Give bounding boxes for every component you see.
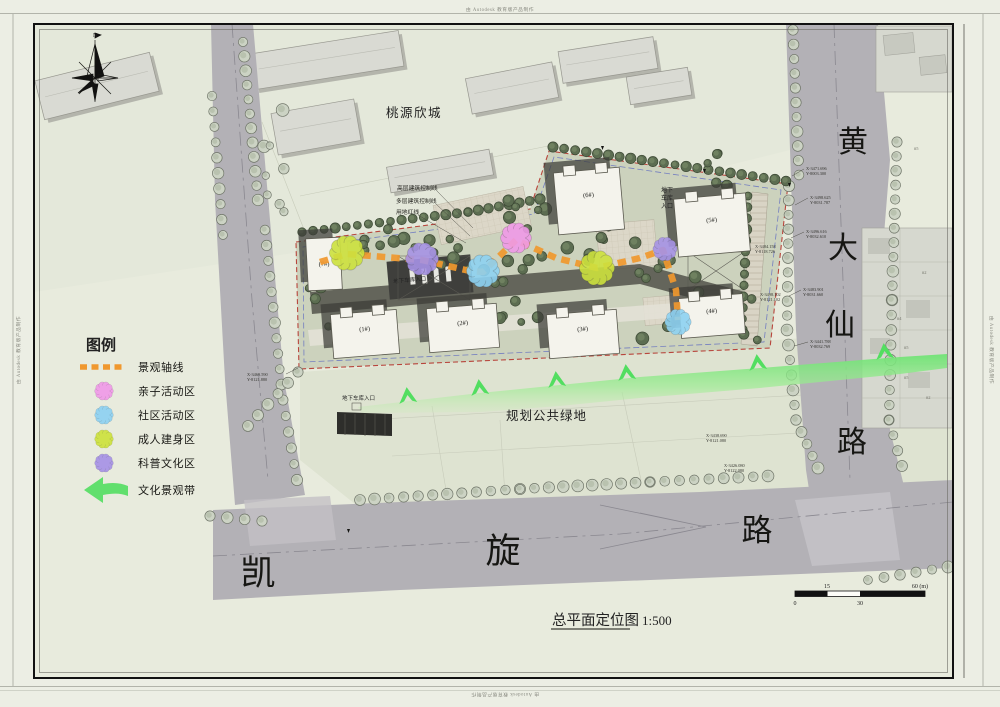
coordinate-label: X-3438.690Y-8121.080 — [706, 433, 727, 443]
legend-flower-icon — [95, 382, 114, 400]
tree-canopy — [376, 219, 381, 224]
legend-flower-icon — [95, 406, 114, 424]
legend-item-label: 景观轴线 — [138, 360, 184, 374]
tree-canopy — [785, 225, 791, 231]
tree-canopy — [385, 494, 390, 499]
tree-canopy — [263, 173, 267, 177]
tree-canopy — [890, 432, 895, 437]
tree-canopy — [474, 206, 480, 212]
parent-child-zone-flower — [501, 223, 532, 253]
tree-canopy — [760, 174, 765, 179]
coordinate-label: X-3498.625Y-8031.787 — [810, 195, 831, 205]
intersection-patch-east — [795, 492, 900, 566]
coordinate-label: X-3471.696Y-8003.300 — [806, 166, 827, 176]
legend-flower-icon — [95, 454, 114, 472]
tree-canopy — [504, 196, 510, 202]
tree-canopy — [343, 224, 347, 228]
building-6: (6#) — [543, 156, 624, 235]
tree-canopy — [243, 81, 248, 86]
tree-canopy — [784, 341, 791, 348]
tree-canopy — [594, 150, 599, 155]
tree-canopy — [637, 334, 644, 341]
tree-canopy — [220, 232, 225, 237]
tree-canopy — [754, 337, 758, 341]
tree-canopy — [247, 124, 253, 130]
tree-canopy — [274, 390, 279, 395]
drawing-sheet: 由 Autodesk 教育版产品制作 由 Autodesk 教育版产品制作 由 … — [0, 0, 1000, 707]
tree-canopy — [789, 386, 796, 393]
tree-canopy — [573, 481, 580, 488]
svg-text:旋: 旋 — [485, 532, 520, 571]
tree-canopy — [784, 312, 789, 317]
tree-canopy — [886, 401, 891, 406]
tree-canopy — [887, 326, 893, 332]
tree-canopy — [398, 216, 403, 221]
tree-canopy — [749, 173, 754, 178]
tree-canopy — [536, 195, 542, 201]
tree-canopy — [893, 153, 898, 158]
tree-canopy — [505, 213, 512, 220]
tree-canopy — [458, 489, 464, 495]
tree-canopy — [789, 26, 795, 32]
tree-canopy — [886, 387, 891, 392]
tree-canopy — [748, 296, 753, 301]
coordinate-label: X-3469.590Y-8121.880 — [247, 372, 268, 382]
tree-canopy — [524, 256, 530, 262]
tree-canopy — [223, 513, 229, 519]
tree-canopy — [276, 366, 281, 371]
tree-canopy — [791, 56, 796, 61]
tree-canopy — [254, 411, 260, 417]
tree-canopy — [211, 123, 216, 128]
green-space-label: 规划公共绿地 — [506, 408, 587, 423]
tree-canopy — [517, 486, 522, 491]
tree-canopy — [270, 304, 275, 309]
tree-canopy — [213, 154, 219, 160]
tree-canopy — [797, 428, 803, 434]
tree-canopy — [764, 472, 771, 479]
tree-canopy — [893, 138, 899, 144]
tree-canopy — [370, 495, 377, 502]
tree-canopy — [886, 417, 891, 422]
tree-canopy — [264, 192, 268, 196]
tree-canopy — [487, 487, 492, 492]
tree-canopy — [790, 41, 796, 47]
tree-canopy — [912, 568, 918, 574]
tree-canopy — [627, 154, 633, 160]
tree-canopy — [783, 326, 789, 332]
tree-canopy — [676, 477, 681, 482]
tree-canopy — [294, 368, 300, 374]
tree-canopy — [795, 157, 801, 163]
svg-text:路: 路 — [742, 513, 773, 548]
parcel-label: #5 — [904, 345, 909, 350]
tree-canopy — [889, 282, 894, 287]
tree-canopy — [643, 275, 648, 280]
legend-item-label: 科普文化区 — [138, 456, 196, 470]
tree-canopy — [705, 475, 711, 481]
tree-canopy — [312, 295, 318, 301]
tree-canopy — [793, 127, 799, 133]
tree-canopy — [512, 297, 517, 302]
tree-canopy — [661, 478, 666, 483]
tree-canopy — [791, 401, 796, 406]
svg-text:凯: 凯 — [240, 554, 275, 593]
tree-canopy — [720, 474, 726, 480]
tree-canopy — [794, 142, 800, 148]
autodesk-watermark-right: 由 Autodesk 教育版产品制作 — [988, 316, 995, 384]
tree-canopy — [244, 422, 250, 428]
tree-canopy — [409, 215, 414, 220]
tree-canopy — [944, 563, 951, 570]
tree-canopy — [278, 105, 285, 112]
tree-canopy — [785, 211, 790, 216]
tree-canopy — [276, 201, 281, 206]
north-label: N — [93, 33, 98, 39]
tree-canopy — [212, 139, 217, 144]
neighborhood-label: 桃源欣城 — [386, 105, 442, 120]
tree-canopy — [215, 184, 221, 190]
building-label: (2#) — [457, 320, 468, 328]
tree-canopy — [705, 160, 709, 164]
parcel-label: #5 — [914, 146, 919, 151]
building-label: (4#) — [706, 308, 717, 316]
legend-item-label: 文化景观带 — [138, 483, 196, 497]
siteplan-canvas: 由 Autodesk 教育版产品制作 由 Autodesk 教育版产品制作 由 … — [0, 0, 1000, 707]
tree-canopy — [741, 259, 746, 264]
adult-fitness-zone-flower — [579, 251, 614, 285]
legend-item-label: 亲子活动区 — [138, 384, 196, 398]
tree-canopy — [241, 66, 247, 72]
tree-canopy — [814, 464, 821, 471]
svg-text:黄: 黄 — [838, 126, 868, 159]
tree-canopy — [388, 218, 392, 222]
tree-canopy — [285, 428, 291, 434]
tree-canopy — [377, 242, 382, 247]
tree-canopy — [602, 480, 608, 486]
tree-canopy — [784, 283, 790, 289]
tree-canopy — [245, 96, 250, 101]
legend-item-label: 成人建身区 — [138, 432, 196, 446]
tree-canopy — [281, 209, 286, 214]
tree-canopy — [268, 288, 273, 293]
scale-tick: 0 — [794, 601, 797, 607]
tree-canopy — [891, 210, 897, 216]
tree-canopy — [563, 243, 570, 250]
tree-canopy — [455, 245, 460, 250]
community-zone-flower — [665, 309, 691, 335]
tree-canopy — [898, 462, 904, 468]
tree-canopy — [519, 319, 523, 323]
tree-canopy — [284, 379, 290, 385]
tree-canopy — [217, 201, 222, 206]
tree-canopy — [713, 179, 718, 184]
tree-canopy — [385, 226, 390, 231]
tree-canopy — [414, 492, 420, 498]
tree-canopy — [266, 273, 271, 278]
tree-canopy — [714, 151, 719, 156]
tree-canopy — [365, 221, 370, 226]
tree-canopy — [531, 485, 536, 490]
tree-canopy — [267, 143, 271, 147]
tree-canopy — [356, 496, 362, 502]
tree-canopy — [449, 253, 456, 260]
drawing-title: 总平面定位图 — [552, 612, 639, 629]
autodesk-watermark-left: 由 Autodesk 教育版产品制作 — [15, 316, 22, 384]
tree-canopy — [240, 39, 245, 44]
tree-canopy — [291, 461, 296, 466]
tree-canopy — [513, 204, 517, 208]
tree-canopy — [672, 162, 676, 166]
tree-canopy — [792, 416, 798, 422]
tree-canopy — [206, 512, 212, 518]
tree-canopy — [888, 296, 894, 302]
tree-canopy — [750, 473, 755, 478]
tree-canopy — [887, 341, 893, 347]
tree-canopy — [442, 211, 448, 217]
tree-canopy — [647, 479, 652, 484]
coordinate-label: X-3426.080Y-8122.080 — [724, 463, 745, 473]
coordinate-label: X-3483.901Y-8031.660 — [803, 287, 824, 297]
tree-canopy — [792, 99, 798, 105]
tree-canopy — [583, 148, 588, 153]
tree-canopy — [271, 318, 277, 324]
adult-fitness-zone-flower — [329, 236, 364, 270]
tree-canopy — [694, 165, 699, 170]
parcel-label: #2 — [926, 395, 931, 400]
parcel-label: #5 — [904, 375, 909, 380]
tree-canopy — [649, 158, 655, 164]
tree-canopy — [791, 70, 796, 75]
tree-canopy — [792, 84, 798, 90]
tree-canopy — [400, 493, 406, 499]
tree-canopy — [251, 167, 257, 173]
tree-canopy — [254, 196, 260, 202]
tree-canopy — [880, 574, 885, 579]
science-culture-zone-flower — [406, 243, 439, 275]
tree-canopy — [734, 473, 740, 479]
tree-canopy — [784, 254, 790, 260]
tree-canopy — [241, 515, 247, 521]
tree-canopy — [782, 177, 787, 182]
parcel-label: #2 — [922, 270, 927, 275]
tree-canopy — [597, 234, 603, 240]
legend-title: 图例 — [86, 336, 116, 354]
tree-canopy — [716, 168, 721, 173]
tree-canopy — [691, 272, 698, 279]
tree-canopy — [561, 145, 566, 150]
tree-canopy — [218, 216, 224, 222]
garage-entrance-label-vertical: 地下车库入口 — [661, 186, 673, 210]
tree-canopy — [727, 169, 732, 174]
scale-tick: 15 — [824, 584, 830, 590]
tree-canopy — [605, 151, 611, 157]
tree-canopy — [282, 413, 287, 418]
tree-canopy — [208, 92, 213, 97]
tree-canopy — [447, 236, 451, 240]
building-label: (5#) — [706, 217, 717, 225]
tree-canopy — [526, 197, 531, 202]
tree-canopy — [572, 147, 577, 152]
highrise-control-label: 高层建筑控制线 — [397, 184, 438, 192]
tree-canopy — [891, 224, 896, 229]
tree-canopy — [519, 266, 524, 271]
tree-canopy — [253, 182, 258, 187]
tree-canopy — [485, 205, 490, 210]
tree-canopy — [331, 224, 337, 230]
tree-canopy — [259, 142, 266, 149]
tree-canopy — [240, 52, 246, 58]
tree-canopy — [588, 481, 594, 487]
tree-canopy — [784, 297, 790, 303]
tree-canopy — [896, 571, 902, 577]
tree-canopy — [771, 176, 777, 182]
svg-text:仙: 仙 — [825, 309, 855, 342]
tree-canopy — [214, 169, 220, 175]
scale-tick: 60 (m) — [912, 583, 928, 590]
tree-canopy — [443, 490, 449, 496]
tree-canopy — [425, 236, 431, 242]
multistorey-control-label: 多层建筑控制线 — [396, 197, 437, 205]
tree-canopy — [354, 222, 358, 226]
coordinate-label: X-3484.158Y-8118.726 — [755, 244, 776, 254]
drawing-scale: 1:500 — [642, 613, 672, 628]
tree-canopy — [890, 239, 895, 244]
tree-canopy — [263, 242, 269, 248]
tree-canopy — [429, 491, 435, 497]
tree-canopy — [929, 566, 934, 571]
parcel-label: #4 — [897, 316, 902, 321]
tree-canopy — [661, 160, 666, 165]
tree-canopy — [617, 479, 623, 485]
tree-canopy — [275, 350, 280, 355]
tree-canopy — [638, 156, 643, 161]
tree-canopy — [210, 108, 215, 113]
tree-canopy — [809, 452, 814, 457]
autodesk-watermark-bottom: 由 Autodesk 教育版产品制作 — [471, 691, 539, 698]
tree-canopy — [691, 476, 696, 481]
tree-canopy — [502, 486, 507, 491]
tree-canopy — [499, 278, 504, 283]
science-culture-zone-flower — [653, 237, 677, 260]
tree-canopy — [420, 214, 425, 219]
tree-canopy — [280, 165, 286, 171]
tree-canopy — [616, 153, 621, 158]
tree-canopy — [785, 196, 791, 202]
tree-canopy — [793, 114, 798, 119]
autodesk-watermark-top: 由 Autodesk 教育版产品制作 — [466, 6, 534, 13]
tree-canopy — [399, 234, 406, 241]
tree-canopy — [888, 311, 893, 316]
building-label: (3#) — [577, 326, 588, 334]
tree-canopy — [535, 207, 539, 211]
tree-canopy — [787, 357, 792, 362]
tree-canopy — [655, 265, 660, 270]
tree-canopy — [431, 213, 436, 218]
tree-canopy — [741, 282, 746, 287]
tree-canopy — [631, 238, 637, 244]
tree-canopy — [273, 335, 278, 340]
tree-canopy — [892, 196, 897, 201]
tree-canopy — [261, 226, 266, 231]
tree-canopy — [889, 267, 895, 273]
tree-canopy — [465, 209, 469, 213]
tree-canopy — [258, 517, 264, 523]
redline-label: 用地红线 — [396, 208, 419, 216]
tree-canopy — [549, 143, 555, 149]
tree-canopy — [890, 254, 895, 259]
community-zone-flower — [467, 255, 500, 287]
svg-text:路: 路 — [837, 426, 867, 459]
tree-canopy — [803, 440, 808, 445]
tree-canopy — [738, 171, 743, 176]
drawing-title-block: 总平面定位图 1:500 — [551, 612, 672, 629]
legend-flower-icon — [95, 430, 114, 448]
tree-canopy — [265, 258, 270, 263]
tree-canopy — [248, 138, 254, 144]
tree-canopy — [892, 167, 898, 173]
tree-canopy — [682, 162, 688, 168]
building-label: (1#) — [359, 326, 370, 334]
coordinate-label: X-3498.102Y-8121.102 — [760, 292, 781, 302]
tree-canopy — [894, 447, 900, 453]
tree-canopy — [473, 488, 479, 494]
tree-canopy — [741, 271, 746, 276]
scale-tick: 30 — [857, 601, 863, 607]
tree-canopy — [246, 110, 251, 115]
tree-canopy — [559, 482, 565, 488]
tree-canopy — [264, 400, 270, 406]
legend-item-label: 社区活动区 — [138, 408, 196, 422]
tree-canopy — [631, 479, 637, 485]
tree-canopy — [495, 203, 500, 208]
building-label: (6#) — [583, 192, 594, 200]
tree-canopy — [293, 476, 299, 482]
tree-canopy — [545, 483, 551, 489]
tree-canopy — [636, 269, 641, 274]
tree-canopy — [250, 153, 256, 159]
svg-text:大: 大 — [828, 232, 858, 265]
garage-entrance-label: 地下车库入口 — [342, 394, 375, 402]
tree-canopy — [785, 240, 790, 245]
tree-canopy — [795, 171, 800, 176]
tree-canopy — [865, 577, 870, 582]
tree-canopy — [389, 237, 396, 244]
tree-canopy — [503, 257, 509, 263]
tree-canopy — [892, 181, 897, 186]
tree-canopy — [784, 269, 789, 274]
coordinate-label: X-3496.616Y-8032.610 — [806, 229, 827, 239]
tree-canopy — [288, 444, 294, 450]
